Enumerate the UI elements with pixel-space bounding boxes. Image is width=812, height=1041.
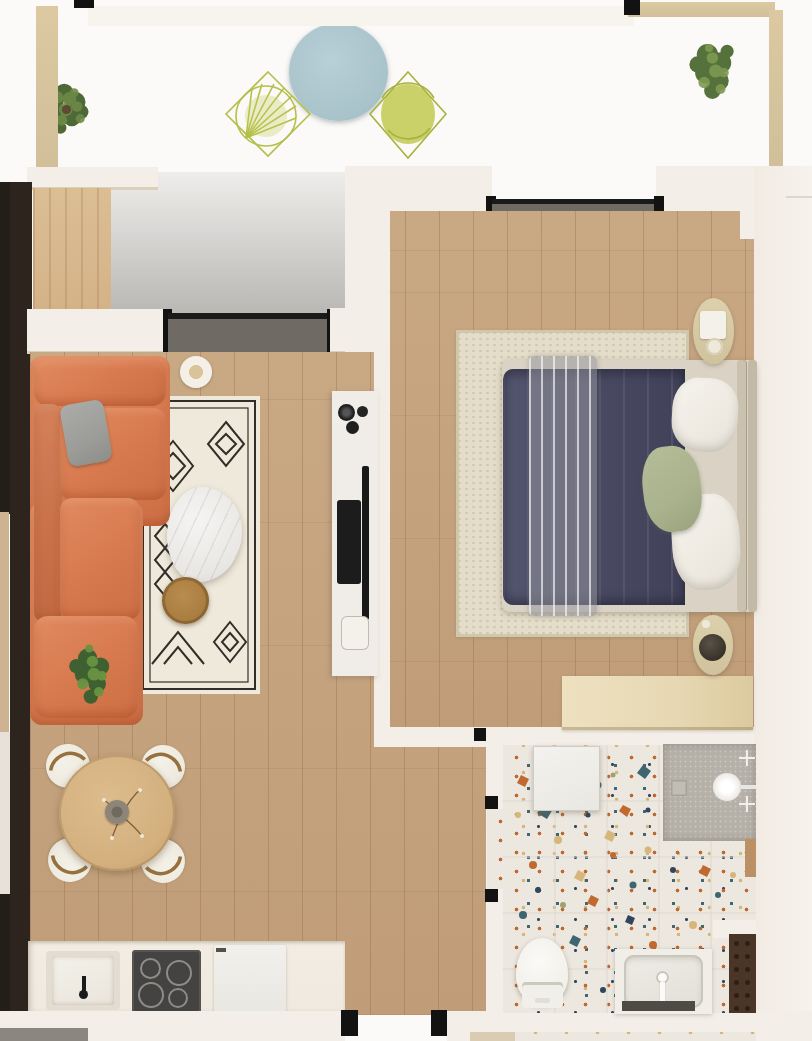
speaker-icon [357, 406, 368, 417]
wall-left-parapet [36, 6, 58, 170]
sofa-armrest [34, 360, 166, 406]
candle-tray [180, 356, 212, 388]
right-wall-line [786, 196, 812, 198]
vase [105, 800, 129, 824]
wall-corner-mark [624, 0, 640, 15]
burner-icon [140, 958, 161, 979]
towel-bar-icon [622, 1001, 695, 1011]
wall-right-parapet [769, 10, 783, 172]
media-box [337, 500, 361, 584]
plant-icon [673, 24, 755, 118]
bathroom-cabinet [729, 934, 756, 1013]
edge-sliver-wood [0, 512, 9, 734]
remote [341, 616, 369, 650]
washing-machine [533, 746, 600, 811]
shower-valve-icon [739, 750, 755, 766]
door-threshold [168, 319, 330, 354]
appliance-handle-icon [216, 948, 226, 952]
speaker-icon [338, 404, 355, 421]
kitchen-sink [46, 951, 120, 1010]
wire-chair-icon [368, 66, 450, 160]
entry-door-jamb [431, 1010, 447, 1036]
faucet-base-icon [79, 990, 88, 999]
door-jamb [485, 796, 498, 809]
bottom-strip-terrazzo [515, 1032, 756, 1041]
entry-door-opening [352, 1016, 436, 1041]
shower [663, 744, 756, 841]
burner-icon [166, 960, 192, 986]
desk [562, 676, 753, 730]
kitchen-appliance [214, 945, 286, 1013]
shower-arm-icon [739, 785, 756, 789]
toilet-button-icon [535, 998, 550, 1003]
shower-head-icon [713, 773, 741, 801]
floor-plan [0, 0, 812, 1041]
burner-icon [138, 982, 164, 1008]
terrace-shadow [108, 172, 345, 314]
tv [362, 466, 369, 620]
wall-top [88, 6, 634, 26]
edge-sliver-dark [0, 182, 10, 514]
sofa-back [34, 404, 62, 622]
bed-pillow [670, 376, 740, 453]
toilet-tank [522, 982, 563, 1008]
right-wall [754, 166, 812, 1041]
wire-chair-icon [222, 68, 314, 160]
closet-door [33, 188, 111, 314]
nightstand [693, 615, 733, 675]
bathroom-door-opening [487, 809, 503, 889]
sofa-seat [60, 498, 140, 620]
closet-top-wall [27, 167, 158, 190]
edge-sliver-light [0, 732, 10, 896]
vanity [615, 949, 712, 1014]
wall-corner-mark [74, 0, 94, 8]
bottom-strip-beige [470, 1032, 518, 1041]
headboard-outer [748, 360, 757, 612]
shower-drain-icon [671, 780, 687, 796]
round-side-table [162, 577, 209, 624]
shower-valve-icon [739, 796, 755, 812]
burner-icon [168, 988, 188, 1008]
nightstand-dish [706, 338, 723, 355]
nightstand-bowl [699, 634, 726, 661]
nightstand [693, 298, 734, 364]
nightstand-tray [700, 311, 726, 339]
throw-blanket [529, 356, 597, 616]
cooktop [132, 950, 201, 1013]
nightstand-dish [702, 620, 710, 628]
living-balcony-wall [27, 309, 169, 354]
toilet [516, 938, 568, 1010]
speaker-icon [346, 421, 359, 434]
wall-top-parapet [628, 2, 775, 17]
door-jamb [485, 889, 498, 902]
bottom-left-tile [0, 1028, 88, 1041]
wood-strip [745, 839, 756, 877]
headboard [737, 360, 746, 612]
plant-icon [54, 622, 134, 720]
